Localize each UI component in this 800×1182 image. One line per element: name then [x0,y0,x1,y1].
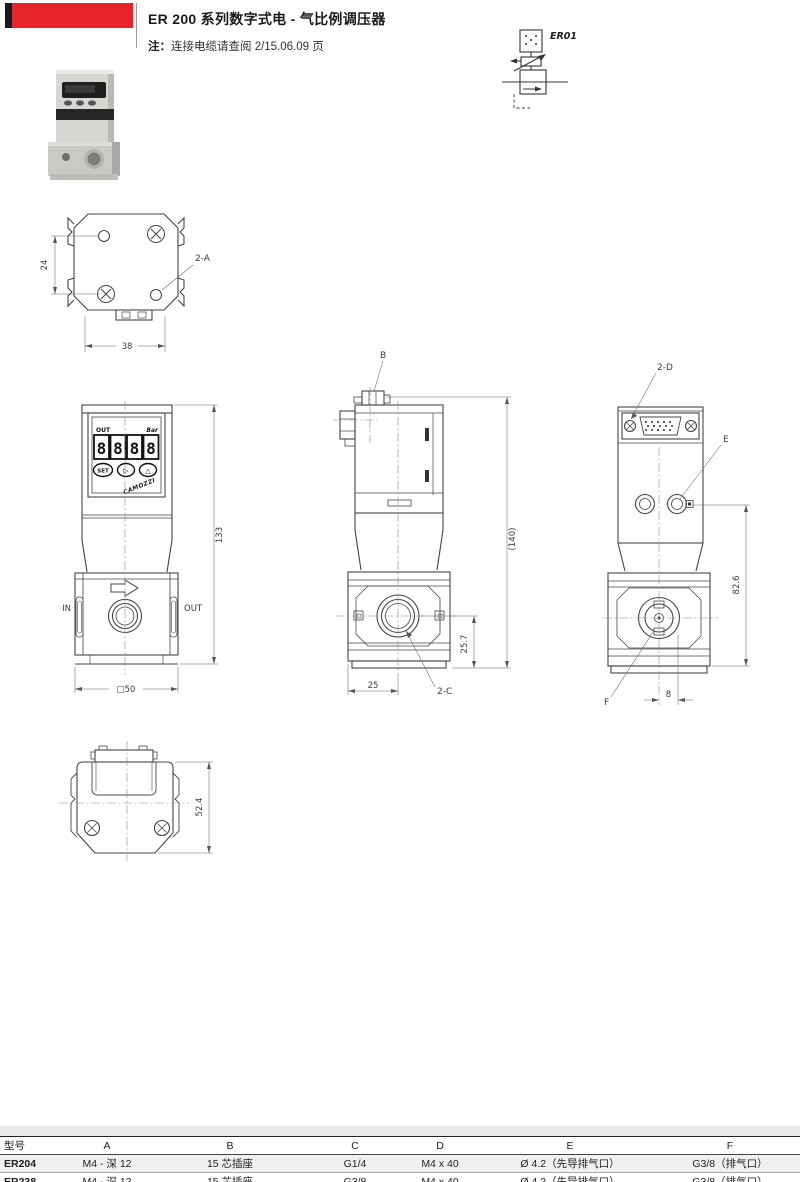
side-arrows [348,397,509,693]
top-view-arrows [53,236,165,348]
note-line: 注：连接电缆请查阅 2/15.06.09 页 [148,38,324,54]
cell-E: Ø 4.2（先导排气口） [480,1173,660,1182]
table-row: ER238 M4 - 深 12 15 芯插座 G3/8 M4 x 40 Ø 4.… [0,1173,800,1182]
cell-D: M4 x 40 [400,1155,480,1173]
dsub-pins [645,421,673,431]
dim-52-4: 52.4 [195,798,205,817]
col-header-E: E [480,1137,660,1155]
dim-140: (140) [508,528,518,551]
top-view-body [68,214,184,320]
top-view-holes [98,226,165,303]
top-view-dim-lines [51,236,193,352]
front-display: OUT Bar 8 8 8 8 SET ▷ △ CAMOZZI [94,427,160,496]
dim-82-6: 82.6 [732,576,742,595]
cell-F: G3/8（排气口） [660,1155,800,1173]
col-header-D: D [400,1137,480,1155]
drawing-side-view: B (140) 25.7 25 2-C [328,343,523,713]
model-cell: ER204 [0,1155,64,1173]
rear-dim-lines [611,373,750,705]
hole-icon [151,290,162,301]
display-out-label: OUT [96,427,111,434]
table-top-band [0,1126,800,1136]
dim-50: □50 [117,685,136,695]
brand-logo-red-block [12,3,133,28]
hole-icon [99,231,110,242]
col-header-B: B [150,1137,310,1155]
pneumatic-symbol: ER01 [490,13,625,123]
col-header-F: F [660,1137,800,1155]
bottom-body [71,746,179,853]
cell-F: G3/8（排气口） [660,1173,800,1182]
header-divider [136,3,137,48]
label-in: IN [62,604,71,614]
side-body [340,391,450,668]
drawing-top-view: 24 38 2-A [38,198,243,373]
table-header-row: 型号 A B C D E F [0,1137,800,1155]
dim-8: 8 [666,690,671,700]
table-row: ER204 M4 - 深 12 15 芯插座 G1/4 M4 x 40 Ø 4.… [0,1155,800,1173]
note-label: 注： [148,41,171,53]
symbol-label: ER01 [550,31,577,42]
up-arrow-icon: △ [145,467,151,475]
photo-shapes [48,70,120,180]
cell-A: M4 - 深 12 [64,1155,150,1173]
label-out: OUT [184,604,203,614]
bottom-centerlines [59,741,189,861]
display-digit: 8 [113,439,123,458]
pilot-port-icon [636,495,655,514]
cell-E: Ø 4.2（先导排气口） [480,1155,660,1173]
dim-133: 133 [215,527,225,543]
dim-24: 24 [40,260,50,271]
catalog-page: ER 200 系列数字式电 - 气比例调压器 注：连接电缆请查阅 2/15.06… [0,0,800,1182]
cell-C: G3/8 [310,1173,400,1182]
col-header-model: 型号 [0,1137,64,1155]
cell-B: 15 芯插座 [150,1173,310,1182]
callout-E: E [723,435,729,445]
cell-B: 15 芯插座 [150,1155,310,1173]
callout-2D: 2-D [657,363,673,373]
set-button-label: SET [97,469,109,475]
pilot-port-icon [668,495,687,514]
drawing-front-view: OUT Bar 8 8 8 8 SET ▷ △ CAMOZZI [45,383,240,713]
dim-38: 38 [122,342,133,352]
cell-A: M4 - 深 12 [64,1173,150,1182]
cell-C: G1/4 [310,1155,400,1173]
display-digit: 8 [130,439,140,458]
display-digit: 8 [146,439,156,458]
callout-2A: 2-A [195,254,211,264]
col-header-A: A [64,1137,150,1155]
rear-centerlines [603,447,718,686]
callout-2C: 2-C [437,687,452,697]
next-arrow-icon: ▷ [123,467,129,475]
col-header-C: C [310,1137,400,1155]
rear-arrows [631,412,748,702]
callout-B: B [380,351,386,361]
display-digit: 8 [97,439,107,458]
dim-25-7: 25.7 [460,635,470,654]
drawing-rear-view: 2-D E 82.6 F 8 [583,353,773,721]
drawing-bottom-view: 52.4 [51,731,231,876]
note-text: 连接电缆请查阅 2/15.06.09 页 [171,41,324,53]
spec-table: 型号 A B C D E F ER204 M4 - 深 12 15 芯插座 G1… [0,1136,800,1182]
product-photo [42,62,142,202]
cell-D: M4 x 40 [400,1173,480,1182]
dim-25: 25 [368,681,379,691]
page-title: ER 200 系列数字式电 - 气比例调压器 [148,9,386,29]
callout-F: F [604,698,609,708]
display-unit-label: Bar [146,427,159,434]
model-cell: ER238 [0,1173,64,1182]
